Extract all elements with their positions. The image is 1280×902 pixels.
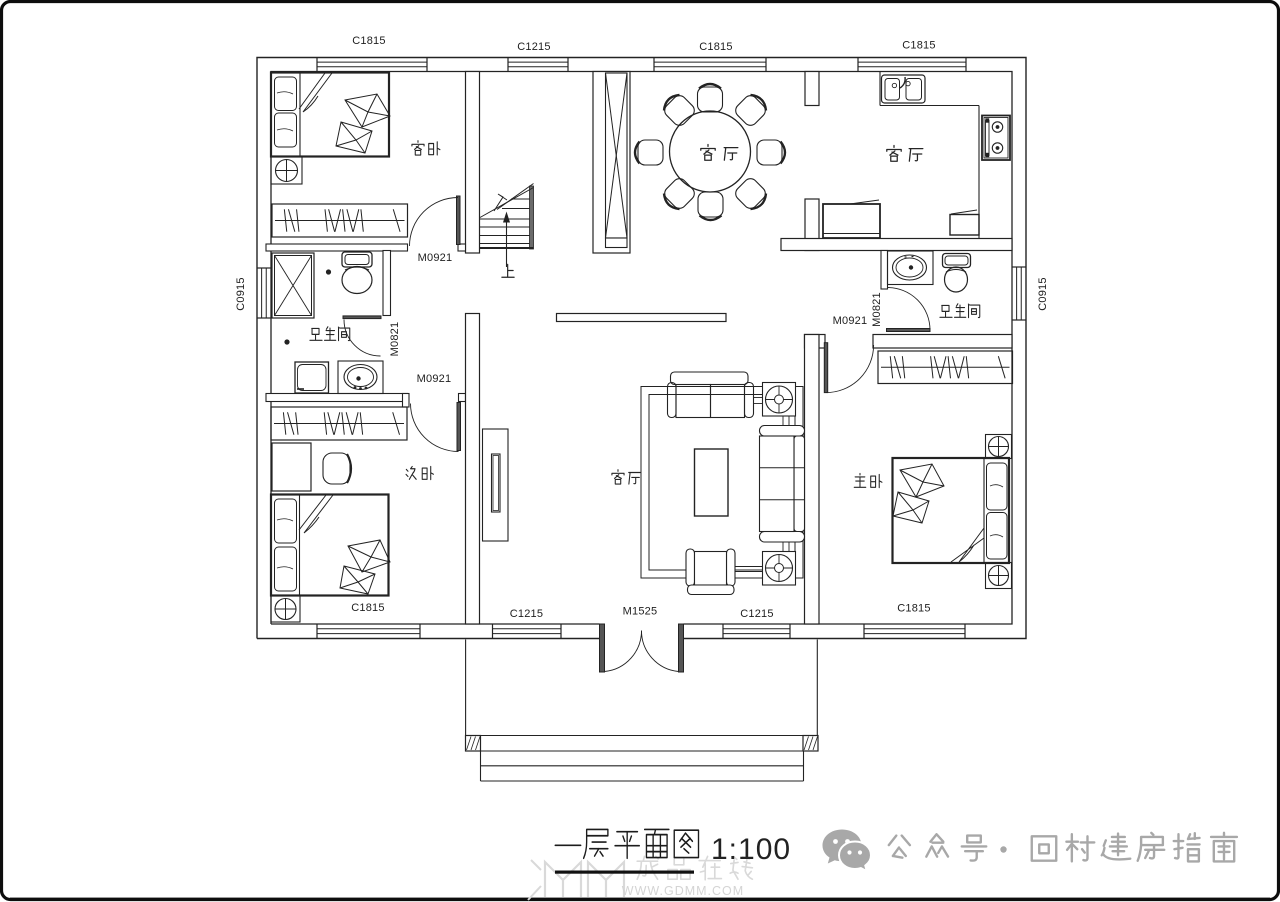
svg-text:M0821: M0821: [871, 292, 883, 327]
svg-text:C0915: C0915: [1037, 277, 1049, 310]
svg-text:C1815: C1815: [902, 40, 935, 52]
svg-text:M0821: M0821: [389, 322, 401, 357]
svg-text:C1815: C1815: [352, 35, 385, 47]
svg-text:M0921: M0921: [833, 315, 868, 327]
svg-text:C1815: C1815: [699, 41, 732, 53]
svg-text:C1215: C1215: [510, 608, 543, 620]
svg-text:C1815: C1815: [897, 603, 930, 615]
svg-text:M0921: M0921: [417, 373, 452, 385]
svg-text:M1525: M1525: [623, 606, 658, 618]
svg-text:1:100: 1:100: [711, 833, 791, 866]
svg-text:C1815: C1815: [351, 602, 384, 614]
svg-text:C0915: C0915: [235, 277, 247, 310]
svg-text:WWW.GDMM.COM: WWW.GDMM.COM: [622, 884, 744, 898]
svg-text:M0921: M0921: [418, 252, 453, 264]
svg-text:C1215: C1215: [517, 41, 550, 53]
svg-text:C1215: C1215: [740, 608, 773, 620]
